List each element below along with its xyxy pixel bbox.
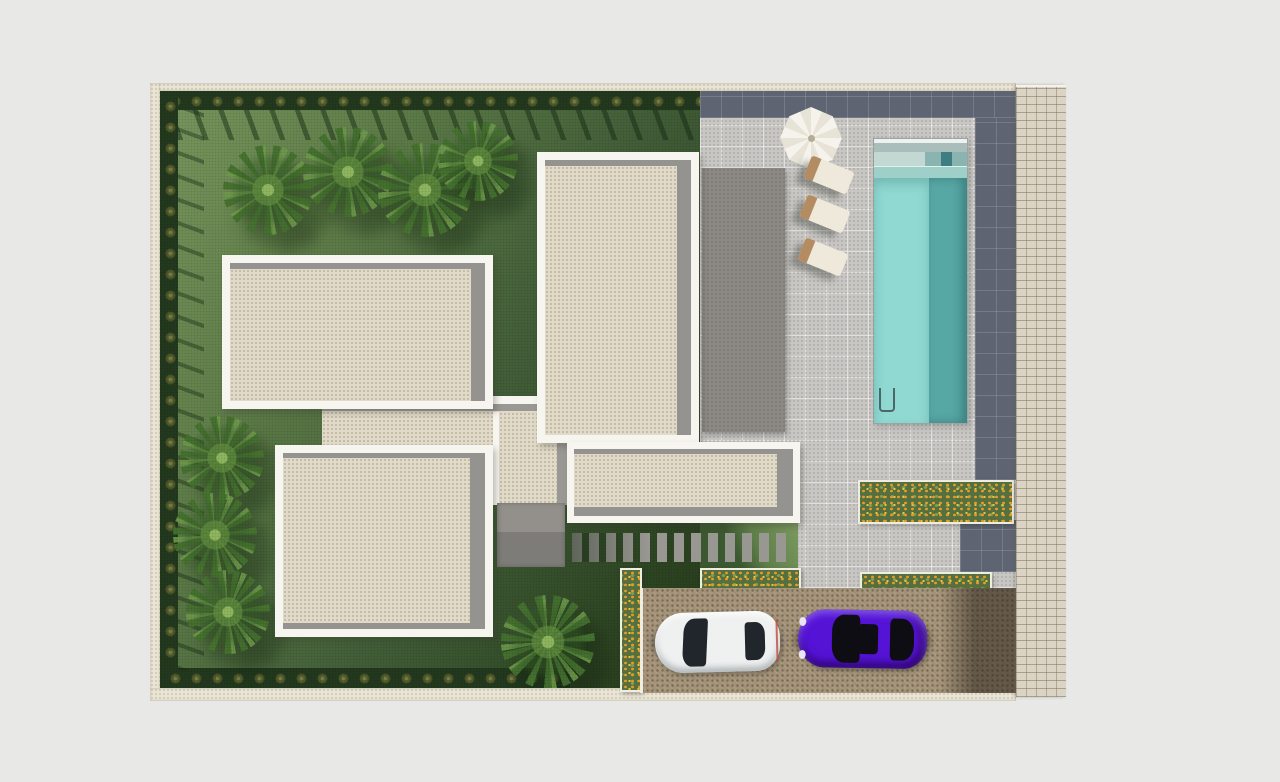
plot-wall-top [150,83,1016,91]
stepping-stone-path [572,533,790,562]
building-roof-central-tall [537,152,699,443]
driveway-curb-left [640,588,643,693]
palm-tree-6 [173,493,257,577]
swimming-pool [873,138,968,424]
gray-patio [497,503,565,567]
building-roof-northwest [222,255,493,409]
driveway-parking-court [640,588,1016,693]
windshield [832,614,861,662]
parasol-hub [808,135,815,142]
white-car [654,610,781,673]
rear-window [890,618,915,660]
rear-window [744,622,765,661]
pool-step-2 [874,152,967,166]
plot-wall-left [150,83,160,701]
sunroof [858,624,879,654]
palm-tree-2 [303,127,393,217]
palm-tree-7 [186,570,270,654]
palm-tree-5 [180,416,264,500]
palm-tree-4 [438,121,518,201]
lounger-headrest [799,194,817,220]
building-roof-southwest [275,445,493,637]
pool-water-shallow [874,178,929,423]
villa-site-plan [0,0,1280,782]
palm-tree-1 [223,145,313,235]
sun-lounger-2 [799,194,851,233]
sun-lounger-1 [803,155,855,194]
pool-ladder [879,388,895,412]
roof-surface [545,160,691,435]
lounger-headrest [797,237,815,263]
frond-shadows-left [178,110,204,670]
windshield [682,618,708,667]
building-roof-south [567,442,800,523]
roof-surface [283,453,485,629]
pool-water-deep [929,178,967,423]
headlight [799,617,806,626]
flower-bed-pool [858,480,1014,524]
hedge-bottom [160,668,570,688]
hedge-left [160,91,178,688]
roof-surface [574,449,793,516]
headlight [799,650,806,659]
palm-tree-3 [378,143,472,237]
roof-surface [230,263,485,401]
slate-border-right-lower [960,520,1016,572]
cobble-walkway [1016,85,1066,697]
slate-border-top [700,91,1016,118]
frond-shadows-top [178,110,700,140]
sun-lounger-3 [797,237,849,276]
purple-car [798,609,928,669]
flower-bed-vertical [620,568,642,692]
palm-tree-8 [501,595,595,688]
terrace-canopy-roof [702,168,785,432]
pool-water [874,178,967,423]
slate-border-right [975,118,1016,480]
pool-step-1 [874,143,967,152]
driveway-shadow [940,588,1016,693]
hedge-top [160,91,700,110]
